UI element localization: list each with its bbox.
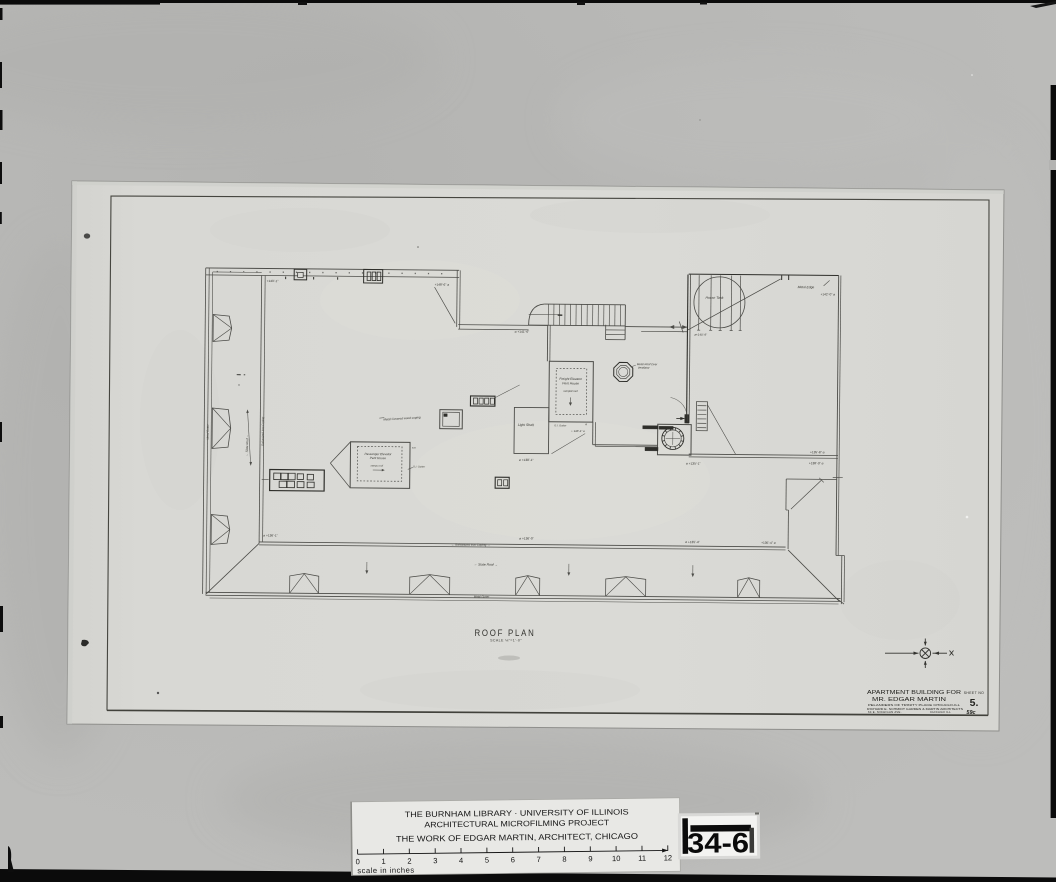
svg-text:SHEET NO: SHEET NO <box>964 691 984 695</box>
svg-text:7: 7 <box>537 855 541 864</box>
svg-text:12: 12 <box>664 853 673 862</box>
svg-text:a.a: a.a <box>412 446 416 449</box>
svg-text:+138’-9” ⌀: +138’-9” ⌀ <box>809 461 824 465</box>
svg-text:1: 1 <box>381 857 385 866</box>
svg-text:Metal Gutter: Metal Gutter <box>474 595 490 599</box>
svg-text:64 E. MICHIGAN AVE.: 64 E. MICHIGAN AVE. <box>868 710 902 714</box>
svg-text:scale in inches: scale in inches <box>357 866 414 876</box>
svg-text:8: 8 <box>562 855 566 864</box>
svg-text:Galvanized Iron Coping: Galvanized Iron Coping <box>261 416 265 446</box>
svg-text:9: 9 <box>588 854 592 863</box>
svg-text:House Tank: House Tank <box>705 296 723 300</box>
svg-text:5: 5 <box>485 856 489 865</box>
svg-text:59c: 59c <box>966 710 975 716</box>
svg-text:Pent House: Pent House <box>562 381 579 385</box>
svg-text:⌀ +138’-1”: ⌀ +138’-1” <box>519 458 534 462</box>
svg-text:0: 0 <box>356 857 360 866</box>
svg-text:Light Shaft: Light Shaft <box>518 423 535 427</box>
svg-text:4: 4 <box>459 856 463 865</box>
svg-text:← Galvanized Iron Coping →: ← Galvanized Iron Coping → <box>451 542 490 546</box>
svg-text:+135’-8” ⌀: +135’-8” ⌀ <box>810 450 825 454</box>
svg-text:34-6: 34-6 <box>687 827 749 859</box>
svg-text:+ 140’-1” ⌀: + 140’-1” ⌀ <box>571 429 585 433</box>
svg-text:+149’-1”: +149’-1” <box>267 279 279 283</box>
svg-text:⌀: ⌀ <box>585 422 587 426</box>
svg-text:+148’-6” ⌀: +148’-6” ⌀ <box>435 283 450 287</box>
svg-text:SCALE ⅛”=1’-0”: SCALE ⅛”=1’-0” <box>490 639 522 643</box>
svg-text:2: 2 <box>407 857 411 866</box>
svg-text:Metal Gutter: Metal Gutter <box>206 423 210 439</box>
svg-text:⌀ +136’-1”: ⌀ +136’-1” <box>263 533 278 537</box>
svg-text:⌀ +136’-0”: ⌀ +136’-0” <box>519 536 534 540</box>
svg-text:⌀ +141’-6”: ⌀ +141’-6” <box>515 330 530 334</box>
svg-text:+135’-4” ⌀: +135’-4” ⌀ <box>761 541 776 545</box>
svg-text:CHICAGO ILL: CHICAGO ILL <box>930 710 951 714</box>
svg-text:11: 11 <box>638 854 646 863</box>
svg-text:G.I. Gutter: G.I. Gutter <box>413 464 425 468</box>
svg-text:ramps roof: ramps roof <box>371 464 384 468</box>
svg-text:APARTMENT BUILDING FOR: APARTMENT BUILDING FOR <box>867 690 961 696</box>
svg-text:ramped roof: ramped roof <box>563 389 578 393</box>
svg-text:5.: 5. <box>970 697 979 709</box>
svg-text:10: 10 <box>612 854 621 863</box>
svg-text:G.I. Gutter: G.I. Gutter <box>554 423 566 427</box>
svg-text:Ventilator: Ventilator <box>638 366 651 370</box>
svg-text:⌀+140’-9”: ⌀+140’-9” <box>694 333 708 337</box>
svg-text:Metal Edge: Metal Edge <box>798 285 815 289</box>
svg-text:⌀ +135’-1”: ⌀ +135’-1” <box>686 462 701 466</box>
svg-text:Pent House: Pent House <box>370 456 386 460</box>
svg-text:ROOF PLAN: ROOF PLAN <box>475 628 536 638</box>
svg-text:6: 6 <box>511 855 515 864</box>
svg-text:3: 3 <box>433 856 437 865</box>
svg-text:⌀ +135’-4”: ⌀ +135’-4” <box>685 540 700 544</box>
svg-text:+142’-0” ⌀: +142’-0” ⌀ <box>820 292 835 296</box>
svg-text:← Slate Roof →: ← Slate Roof → <box>474 563 498 567</box>
